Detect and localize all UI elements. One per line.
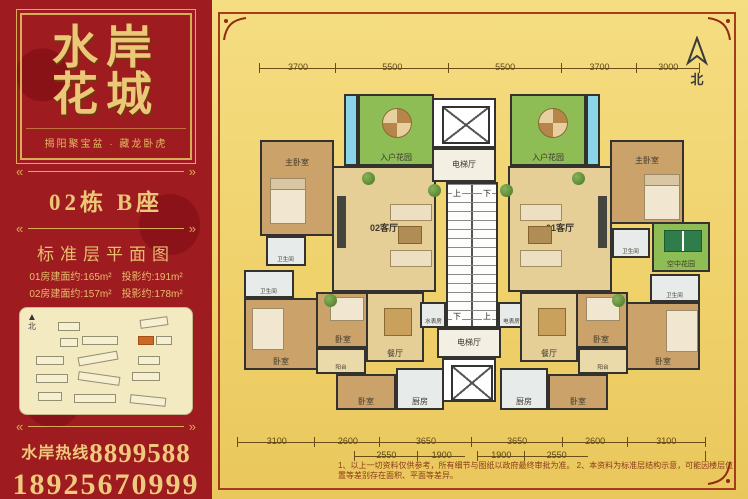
bed-icon [666, 310, 698, 352]
dining-table-icon [538, 308, 566, 336]
coffee-table-icon [398, 226, 422, 244]
brand-tagline: 揭阳聚宝盆 · 藏龙卧虎 [26, 128, 186, 150]
arrow-left-icon: « [16, 420, 23, 433]
elevator-icon [451, 365, 493, 401]
site-plan-block [36, 374, 68, 383]
sofa-icon [520, 204, 562, 221]
room-kitchen-right: 厨房 [500, 368, 548, 410]
room-bedroom-right-a: 卧室 [626, 302, 700, 370]
dimension: 2550 [525, 444, 588, 457]
site-plan-block [130, 394, 167, 407]
site-plan-block [140, 316, 169, 329]
building-subtitle: 标准层平面图 [0, 240, 212, 265]
room-bedroom-right-c: 卧室 [548, 374, 608, 410]
dimension: 3700 [562, 56, 638, 69]
divider-ornament: «» [16, 222, 196, 235]
room-sky-garden: 空中花园 [652, 222, 710, 272]
room-bathroom-master-right: 卫生间 [612, 228, 650, 258]
plant-icon [324, 294, 337, 307]
dimension: 3100 [628, 430, 705, 443]
site-plan-block [38, 392, 62, 401]
room-living-01: 01客厅 [508, 166, 612, 292]
elevator-hall-top: 电梯厅 [432, 148, 496, 182]
area-row-01: 01房建面约:165m² 投影约:191m² [10, 268, 202, 283]
dimension: 3650 [380, 430, 471, 443]
pool-left [344, 94, 358, 166]
room-entry-garden-right: 入户花园 [510, 94, 586, 166]
stair-down-label: 下 [452, 311, 462, 322]
tv-cabinet-icon [598, 196, 607, 248]
brand-name-line2: 花城 [26, 72, 186, 119]
room-bathroom-right-2: 卫生间 [650, 274, 700, 302]
dimension: 1900 [478, 444, 525, 457]
pingpong-table-icon [664, 230, 702, 252]
area-info: 01房建面约:165m² 投影约:191m² 02房建面约:157m² 投影约:… [10, 268, 202, 300]
area-01-projected: 投影约:191m² [122, 268, 183, 283]
building-title: 02栋 B座 [0, 183, 212, 217]
site-plan-map: ▲北 [19, 307, 193, 415]
dining-table-icon [384, 308, 412, 336]
dimension: 3700 [260, 56, 336, 69]
dimension: 3650 [472, 430, 563, 443]
room-balcony-left: 阳台 [316, 348, 366, 374]
staircase: 上 下 下 上 [446, 182, 498, 328]
dimension: 5500 [449, 56, 562, 69]
pillow-icon [270, 178, 306, 190]
room-bedroom-left-a: 卧室 [244, 298, 318, 370]
room-master-bedroom-right: 主卧室 [610, 140, 684, 224]
sofa-icon [520, 250, 562, 267]
elevator-shaft-top [432, 98, 496, 148]
bed-icon [252, 308, 284, 350]
stair-up-label: 上 [482, 311, 492, 322]
room-water-meter: 水表房 [420, 302, 446, 328]
hotline-phone-1: 8899588 [89, 438, 191, 468]
site-plan-block [60, 338, 78, 347]
room-entry-garden-left: 入户花园 [358, 94, 434, 166]
arrow-left-icon: « [16, 165, 23, 178]
room-dining-left: 餐厅 [366, 292, 424, 362]
footnote: 1、以上一切资料仅供参考，所有细节与图纸以政府最终审批为准。 2、本资料为标准层… [338, 461, 734, 480]
plant-icon [428, 184, 441, 197]
hotline: 水岸热线8899588 18925670999 [0, 438, 212, 499]
dimension: 2600 [563, 430, 628, 443]
arrow-right-icon: » [189, 165, 196, 178]
plant-icon [500, 184, 513, 197]
dimension: 3100 [238, 430, 315, 443]
site-plan-block [78, 371, 121, 386]
brand-name-line1: 水岸 [26, 25, 186, 72]
room-bedroom-left-c: 卧室 [336, 374, 396, 410]
plant-icon [572, 172, 585, 185]
area-02-projected: 投影约:178m² [122, 285, 183, 300]
floorplan: 入户花园 02客厅 主卧室 卫生间 卫生间 卧室 卧室 [232, 88, 712, 418]
area-01-built: 01房建面约:165m² [29, 268, 111, 283]
arrow-left-icon: « [16, 222, 23, 235]
floorplan-poster: 水岸 花城 揭阳聚宝盆 · 藏龙卧虎 «» 02栋 B座 «» 标准层平面图 0… [0, 0, 748, 499]
dimension: 1900 [418, 444, 465, 457]
site-plan-block-highlight [138, 336, 154, 345]
divider-ornament: «» [16, 420, 196, 433]
room-dining-right: 餐厅 [520, 292, 578, 362]
dimension: 2600 [315, 430, 380, 443]
parasol-table-icon [382, 108, 412, 138]
site-plan-block [36, 356, 64, 365]
coffee-table-icon [528, 226, 552, 244]
divider-ornament: «» [16, 165, 196, 178]
plant-icon [362, 172, 375, 185]
hotline-phone-2: 18925670999 [0, 469, 212, 499]
elevator-shaft-bottom [442, 358, 496, 402]
area-row-02: 02房建面约:157m² 投影约:178m² [10, 285, 202, 300]
site-plan-block [138, 356, 160, 365]
room-bathroom-left-2: 卫生间 [244, 270, 294, 298]
site-plan-block [156, 336, 172, 345]
area-02-built: 02房建面约:157m² [29, 285, 111, 300]
plant-icon [612, 294, 625, 307]
site-plan-block [74, 394, 116, 403]
brand-frame: 水岸 花城 揭阳聚宝盆 · 藏龙卧虎 [20, 13, 192, 160]
elevator-icon [442, 106, 490, 144]
arrow-right-icon: » [189, 420, 196, 433]
pool-right [586, 94, 600, 166]
site-plan-block [58, 322, 80, 331]
bottom-sub-dimension-line: 2550 1900 1900 2550 [238, 444, 706, 457]
tv-cabinet-icon [337, 196, 346, 248]
room-balcony-right: 阳台 [578, 348, 628, 374]
corner-flourish-icon [222, 16, 248, 42]
top-dimension-line: 3700 5500 5500 3700 3000 [260, 56, 700, 69]
sofa-icon [390, 250, 432, 267]
site-plan-block [132, 372, 160, 381]
parasol-table-icon [538, 108, 568, 138]
room-master-bedroom-left: 主卧室 [260, 140, 334, 236]
site-plan-block [78, 350, 119, 366]
hotline-label: 水岸热线 [21, 445, 89, 462]
sitemap-north-arrow-icon: ▲北 [27, 313, 37, 331]
site-plan-block [82, 336, 118, 345]
elevator-hall-bottom: 电梯厅 [437, 328, 501, 358]
stair-down-label: 下 [482, 188, 492, 199]
dimension: 2550 [355, 444, 418, 457]
north-label: 北 [680, 69, 714, 88]
stair-up-label: 上 [452, 188, 462, 199]
room-living-02: 02客厅 [332, 166, 436, 292]
arrow-right-icon: » [189, 222, 196, 235]
brand-panel: 水岸 花城 揭阳聚宝盆 · 藏龙卧虎 «» 02栋 B座 «» 标准层平面图 0… [0, 0, 212, 499]
dimension: 3000 [637, 56, 699, 69]
dimension: 5500 [336, 56, 449, 69]
bottom-dimension-line: 3100 2600 3650 3650 2600 3100 [238, 430, 706, 443]
sofa-icon [390, 204, 432, 221]
room-bathroom-master-left: 卫生间 [266, 236, 306, 266]
room-kitchen-left: 厨房 [396, 368, 444, 410]
plan-area: 北 3700 5500 5500 3700 3000 入户花园 02客厅 [212, 0, 748, 499]
pillow-icon [644, 174, 680, 186]
